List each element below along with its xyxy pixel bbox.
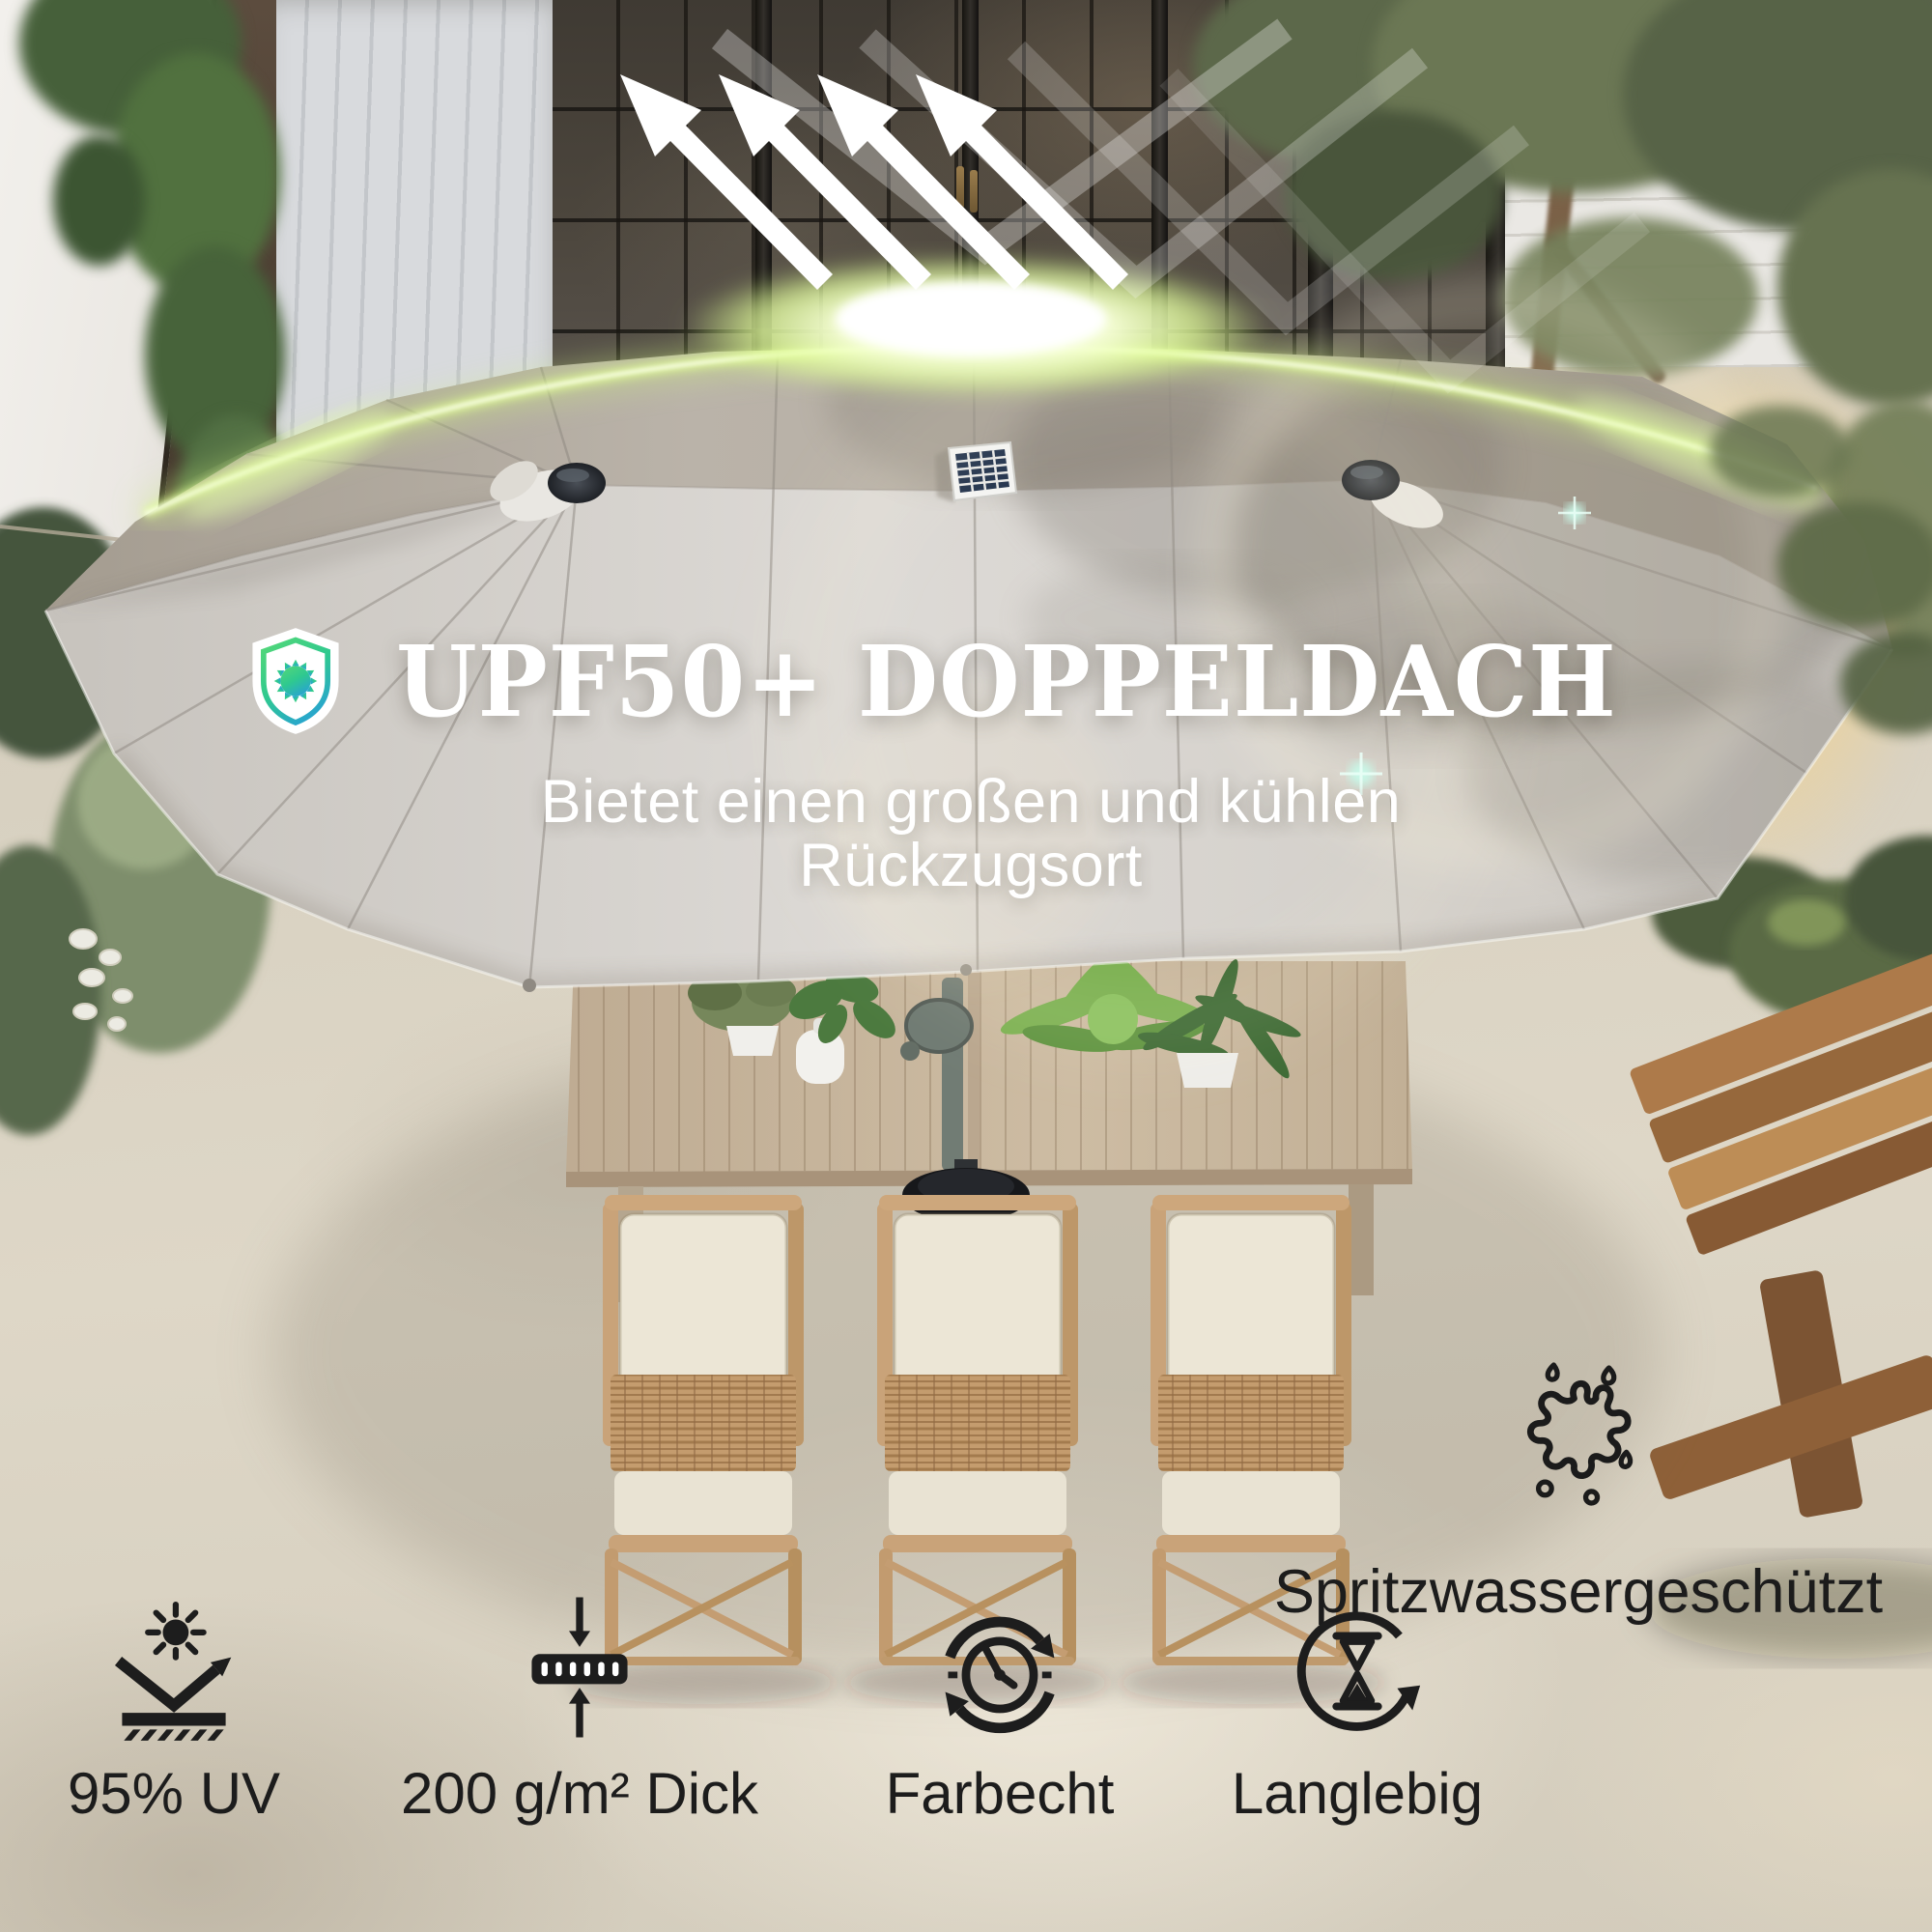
hero-subtitle: Bietet einen großen und kühlen Rückzugso… — [372, 770, 1570, 897]
feature-colorfast: Farbecht — [850, 1592, 1150, 1827]
fabric-thickness-icon — [523, 1592, 637, 1743]
umbrella-product-banner: UPF50+ DOPPELDACH Bietet einen großen un… — [0, 0, 1932, 1932]
upf-shield-sun-icon — [245, 626, 346, 736]
feature-uv-label: 95% UV — [68, 1760, 280, 1827]
colorfast-clock-icon — [929, 1592, 1070, 1743]
uv-reflection-icon — [109, 1592, 239, 1743]
feature-thickness-label: 200 g/m² Dick — [401, 1760, 758, 1827]
hero-title: UPF50+ DOPPELDACH — [396, 626, 1617, 737]
feature-colorfast-label: Farbecht — [886, 1760, 1115, 1827]
hero-block: UPF50+ DOPPELDACH — [245, 626, 1681, 737]
water-splash-icon — [1515, 1356, 1642, 1509]
splash-feature: Spritzwassergeschützt — [1229, 1356, 1928, 1627]
tree-foliage — [1777, 502, 1932, 628]
hourglass-cycle-icon — [1286, 1592, 1429, 1743]
feature-durable-label: Langlebig — [1232, 1760, 1483, 1827]
rib-tip-knob — [523, 979, 536, 992]
tree-foliage — [1710, 406, 1850, 497]
feature-thickness: 200 g/m² Dick — [406, 1592, 753, 1827]
feature-uv: 95% UV — [34, 1592, 314, 1827]
feature-durable: Langlebig — [1198, 1592, 1517, 1827]
